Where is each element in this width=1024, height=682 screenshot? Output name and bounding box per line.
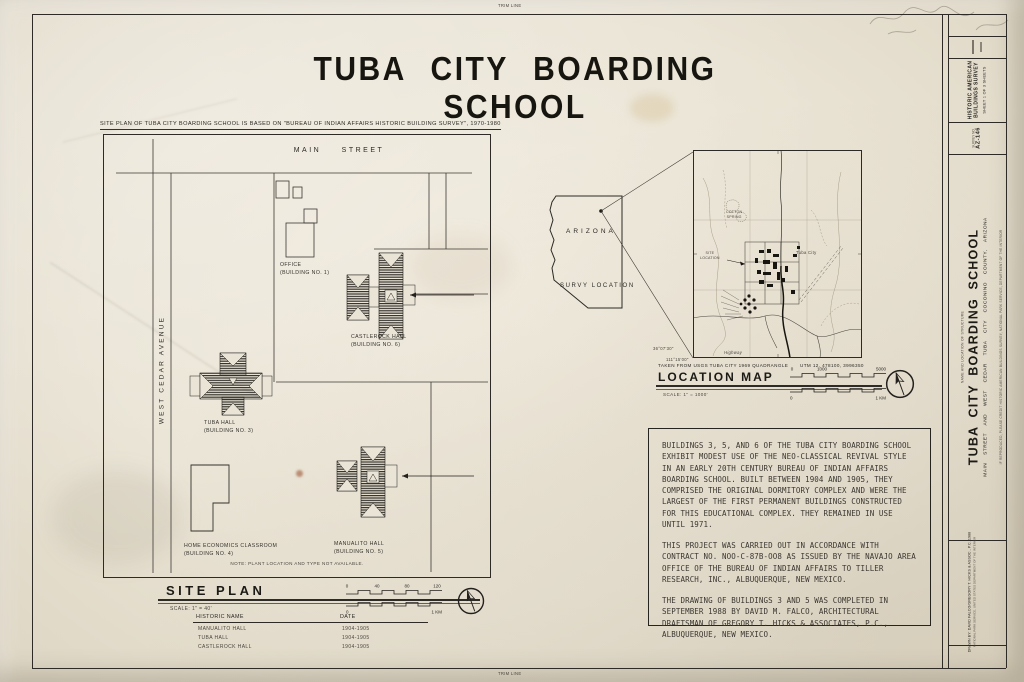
site-plan-scale: SCALE: 1" = 40'	[170, 606, 212, 612]
agency-line: NATIONAL PARK SERVICE, UNITED STATES DEP…	[972, 532, 976, 653]
tuba-hall-label: TUBA HALL (BUILDING NO. 3)	[204, 420, 253, 436]
structure-title-block: NAME AND LOCATION OF STRUCTURE TUBA CITY…	[961, 217, 990, 476]
map-longitude-label: 111°15'00"	[666, 357, 689, 362]
manualito-hall-footprint	[337, 447, 474, 517]
site-location-label: SITE LOCATION	[700, 251, 720, 260]
svg-text:0: 0	[791, 367, 794, 372]
site-scalebar-metric: 0 1 KM	[344, 600, 444, 616]
building-name: TUBA HALL	[204, 420, 253, 428]
svg-text:1000: 1000	[817, 367, 828, 372]
titleblock-divider	[948, 36, 1006, 37]
trim-rule-top	[32, 14, 1006, 15]
map-source-caption: TAKEN FROM USGS TUBA CITY 1969 QUADRANGL…	[658, 363, 788, 368]
trim-line-label-bottom: TRIM LINE	[498, 671, 521, 676]
description-paragraph-2: THIS PROJECT WAS CARRIED OUT IN ACCORDAN…	[662, 540, 917, 585]
building-number: (BUILDING NO. 4)	[184, 551, 277, 559]
tuba-hall-footprint	[190, 353, 272, 415]
drawn-by-block: DRAWN BY: DAVID FALCO/GREGORY T. HICKS &…	[967, 532, 976, 653]
structure-header: NAME AND LOCATION OF STRUCTURE	[961, 217, 965, 476]
building-name: OFFICE	[280, 262, 329, 270]
plan-note: NOTE: PLANT LOCATION AND TYPE NOT AVAILA…	[164, 561, 430, 566]
cotton-spring-label: COTTON SPRING	[726, 210, 742, 219]
svg-text:40: 40	[374, 584, 380, 589]
table-cell-date: 1904-1905	[342, 635, 370, 641]
svg-text:0: 0	[790, 396, 793, 401]
titleblock-divider	[948, 58, 1006, 59]
svg-text:0: 0	[346, 584, 349, 589]
castlerock-hall-label: CASTLEROCK HALL (BUILDING NO. 6)	[351, 334, 407, 350]
building-number: (BUILDING NO. 5)	[334, 549, 384, 557]
north-arrow-icon	[456, 586, 486, 616]
location-map-scale: SCALE: 1" = 1000'	[663, 392, 708, 397]
north-arrow-icon	[884, 368, 916, 400]
table-cell-date: 1904-1905	[342, 644, 370, 650]
titleblock-border-left	[948, 14, 949, 668]
table-cell-date: 1904-1905	[342, 626, 370, 632]
titleblock-divider	[948, 154, 1006, 155]
table-header-underline	[193, 622, 428, 623]
description-paragraph-1: BUILDINGS 3, 5, AND 6 OF THE TUBA CITY B…	[662, 440, 917, 530]
table-row: MANUALITO HALL	[198, 626, 247, 632]
building-name: HOME ECONOMICS CLASSROOM	[184, 543, 277, 551]
survey-number: SURVEY NO. AZ-146	[971, 127, 982, 149]
building-number: (BUILDING NO. 6)	[351, 342, 407, 350]
credit-line: IF REPRODUCED, PLEASE CREDIT HISTORIC AM…	[999, 230, 1003, 465]
office-label: OFFICE (BUILDING NO. 1)	[280, 262, 329, 278]
sheet-number: SHEET 1 OF 3 SHEETS	[982, 61, 987, 120]
castlerock-hall-footprint	[347, 253, 474, 339]
home-economics-footprint	[191, 465, 229, 531]
site-plan-panel: MAIN STREET WEST CEDAR AVENUE OFFICE (BU…	[103, 134, 491, 578]
sheet-border-left	[32, 14, 33, 668]
west-cedar-avenue-label: WEST CEDAR AVENUE	[159, 316, 166, 424]
tuba-city-label: Tuba City	[796, 250, 816, 255]
structure-address: MAIN STREET AND WEST CEDAR TUBA CITY COC…	[984, 217, 990, 476]
titleblock-micro-rules	[972, 40, 974, 54]
page-title: TUBA CITY BOARDING SCHOOL	[250, 51, 780, 127]
main-street-label: MAIN STREET	[254, 147, 424, 154]
arizona-label: ARIZONA	[566, 228, 616, 235]
building-name: MANUALITO HALL	[334, 541, 384, 549]
table-header-name: HISTORIC NAME	[196, 614, 244, 620]
manualito-hall-label: MANUALITO HALL (BUILDING NO. 5)	[334, 541, 384, 557]
description-box: BUILDINGS 3, 5, AND 6 OF THE TUBA CITY B…	[648, 428, 931, 626]
titleblock-micro-rules	[980, 42, 982, 52]
description-paragraph-3: THE DRAWING OF BUILDINGS 3 AND 5 WAS COM…	[662, 595, 917, 640]
survey-location-label: SURVY LOCATION	[560, 283, 635, 289]
titleblock-border-right	[1006, 14, 1007, 668]
trim-rule-bottom	[32, 668, 1006, 669]
site-plan-heading: SITE PLAN	[166, 583, 265, 598]
trim-line-label-top: TRIM LINE	[498, 3, 521, 8]
home-economics-label: HOME ECONOMICS CLASSROOM (BUILDING NO. 4…	[184, 543, 277, 559]
titleblock-divider	[948, 645, 1006, 646]
table-row: CASTLEROCK HALL	[198, 644, 252, 650]
table-header-date: DATE	[340, 614, 356, 620]
highway-label: Highway	[724, 350, 742, 355]
table-row: TUBA HALL	[198, 635, 229, 641]
titleblock-divider	[948, 540, 1006, 541]
building-number: (BUILDING NO. 1)	[280, 270, 329, 278]
location-scalebar-metric: 0 1 KM	[788, 386, 888, 402]
location-map-heading: LOCATION MAP	[658, 370, 774, 384]
campus-building-cluster	[740, 246, 800, 314]
site-scalebar-feet: 0 40 80 120	[344, 583, 444, 597]
svg-text:1 KM: 1 KM	[431, 610, 442, 615]
map-latitude-label: 36°07'30"	[653, 346, 674, 351]
structure-title: TUBA CITY BOARDING SCHOOL	[967, 217, 982, 476]
building-number: (BUILDING NO. 3)	[204, 428, 253, 436]
location-scalebar-feet: 0 1000 5000	[788, 366, 888, 380]
sheet-border-right	[942, 14, 943, 668]
building-name: CASTLEROCK HALL	[351, 334, 407, 342]
habs-drawing-sheet: TRIM LINE TRIM LINE TUBA CITY BOARDING S…	[0, 0, 1024, 682]
svg-text:80: 80	[404, 584, 410, 589]
habs-survey-title: HISTORIC AMERICAN BUILDINGS SURVEY SHEET…	[967, 61, 986, 120]
titleblock-divider	[948, 122, 1006, 123]
source-note: SITE PLAN OF TUBA CITY BOARDING SCHOOL I…	[100, 121, 501, 130]
svg-text:120: 120	[433, 584, 441, 589]
